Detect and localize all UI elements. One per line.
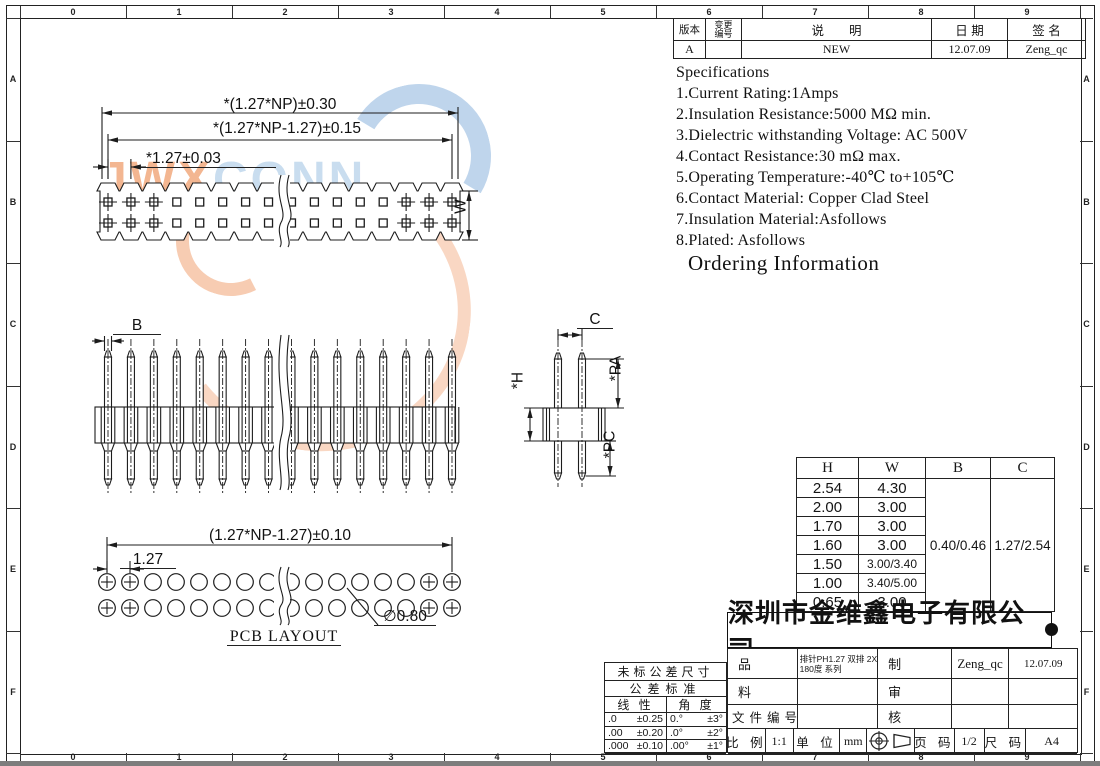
spec-item: 2.Insulation Resistance:5000 MΩ min.: [676, 104, 1086, 125]
ruler-mark: [1080, 386, 1093, 387]
dim-pcb-hole-diameter: ∅0.80: [374, 608, 436, 626]
dim-topview-overall: *(1.27*NP)±0.30: [150, 96, 410, 113]
spec-item: 5.Operating Temperature:-40℃ to+105℃: [676, 167, 1086, 188]
ruler-mark: [6, 141, 20, 142]
company-name-bar: 深圳市金维鑫电子有限公司: [727, 612, 1052, 648]
size-table: H W B C 2.544.300.40/0.461.27/2.542.003.…: [796, 457, 1055, 612]
size-table-cell: 3.00: [859, 498, 926, 517]
ruler-mark: [6, 263, 20, 264]
size-col-c: C: [991, 458, 1055, 479]
tolerance-row: .0±0.250.°±3°: [605, 713, 726, 727]
scan-edge: [0, 761, 1100, 766]
drawn-date-value: 12.07.09: [1009, 649, 1077, 679]
approve-date-value: [1009, 705, 1077, 729]
dim-topview-inner: *(1.27*NP-1.27)±0.15: [157, 120, 417, 137]
zone-letter-left: C: [6, 319, 20, 329]
file-number-value: [798, 705, 879, 729]
spec-item: 3.Dielectric withstanding Voltage: AC 50…: [676, 125, 1086, 146]
tolerance-row: .000±0.10.00°±1°: [605, 740, 726, 754]
title-block: 品 名 排针PH1.27 双排 2XNP 180度 系列 制 图 Zeng_qc…: [727, 648, 1078, 753]
page-value: 1/2: [955, 729, 985, 754]
size-col-h: H: [797, 458, 859, 479]
revision-col-date: 日 期: [932, 19, 1008, 41]
review-label: 审 核: [878, 679, 952, 705]
zone-number-top: 3: [338, 7, 444, 17]
ordering-information-title: Ordering Information: [688, 251, 879, 276]
revision-desc: NEW: [742, 41, 932, 59]
zone-letter-right: F: [1080, 687, 1093, 697]
size-col-b: B: [926, 458, 991, 479]
page-label: 页 码: [915, 729, 955, 754]
ruler-mark: [1080, 508, 1093, 509]
revision-col-change: 变更 编号: [706, 19, 742, 41]
approve-label: 核 准: [878, 705, 952, 729]
dim-endview-spacing: C: [577, 311, 613, 329]
revision-col-version: 版本: [674, 19, 706, 41]
zone-letter-right: E: [1080, 564, 1093, 574]
drawing-sheet: JWXCONN 00112233445566778899AABBCCDDEEFF…: [0, 0, 1100, 766]
file-number-label: 文件编号: [728, 705, 798, 729]
dim-sideview-pin-width: B: [113, 317, 161, 335]
tolerance-title-2: 公差标准: [605, 681, 726, 697]
size-table-merged-cell: 0.40/0.46: [926, 479, 991, 612]
tolerance-rows: .0±0.250.°±3°.00±0.20.0°±2°.000±0.10.00°…: [605, 713, 726, 754]
side-and-end-view-drawing: [88, 315, 628, 515]
part-number-label: 料 号: [728, 679, 798, 705]
dim-pcb-pitch: 1.27: [120, 551, 176, 569]
tolerance-title-1: 未标公差尺寸: [605, 663, 726, 681]
spec-item: 1.Current Rating:1Amps: [676, 83, 1086, 104]
revision-table: 版本 变更 编号 说 明 日 期 签 名 A NEW 12.07.09 Zeng…: [673, 18, 1086, 59]
approve-value: [952, 705, 1010, 729]
ruler-mark: [6, 508, 20, 509]
size-table-cell: 4.30: [859, 479, 926, 498]
zone-letter-left: D: [6, 442, 20, 452]
zone-number-top: 2: [232, 7, 338, 17]
dim-topview-width: W: [453, 196, 470, 218]
tolerance-row: .00±0.20.0°±2°: [605, 727, 726, 741]
dim-endview-pc: *PC: [602, 423, 619, 467]
size-col-w: W: [859, 458, 926, 479]
zone-letter-left: F: [6, 687, 20, 697]
ruler-mark: [6, 631, 20, 632]
size-table-cell: 1.60: [797, 536, 859, 555]
pcb-layout-caption: PCB LAYOUT: [227, 628, 341, 646]
ruler-mark: [1080, 6, 1081, 18]
size-table-row: 2.544.300.40/0.461.27/2.54: [797, 479, 1055, 498]
scale-value: 1:1: [766, 729, 794, 754]
spec-item: 6.Contact Material: Copper Clad Steel: [676, 188, 1086, 209]
sheet-size-label: 尺 码: [985, 729, 1027, 754]
size-table-cell: 2.54: [797, 479, 859, 498]
sheet-size-value: A4: [1026, 729, 1077, 754]
third-angle-projection-icon: [869, 731, 913, 751]
size-table-merged-cell: 1.27/2.54: [991, 479, 1055, 612]
size-table-cell: 1.50: [797, 555, 859, 574]
product-name-label: 品 名: [728, 649, 798, 679]
spec-item: 7.Insulation Material:Asfollows: [676, 209, 1086, 230]
tolerance-angle-header: 角 度: [667, 697, 726, 713]
revision-row: A NEW 12.07.09 Zeng_qc: [674, 41, 1086, 59]
size-table-cell: 3.00/3.40: [859, 555, 926, 574]
ruler-mark: [1080, 631, 1093, 632]
specifications-title: Specifications: [676, 62, 1086, 83]
zone-number-top: 0: [20, 7, 126, 17]
ruler-mark: [1080, 753, 1093, 754]
product-name-value: 排针PH1.27 双排 2XNP 180度 系列: [798, 649, 879, 679]
ruler-mark: [1080, 263, 1093, 264]
revision-col-desc: 说 明: [742, 19, 932, 41]
zone-number-top: 1: [126, 7, 232, 17]
dim-endview-h: *H: [510, 361, 527, 401]
revision-change: [706, 41, 742, 59]
zone-letter-left: A: [6, 74, 20, 84]
spec-item: 4.Contact Resistance:30 mΩ max.: [676, 146, 1086, 167]
size-table-cell: 3.40/5.00: [859, 574, 926, 593]
drawn-by-label: 制 图: [878, 649, 952, 679]
dim-pcb-overall: (1.27*NP-1.27)±0.10: [150, 527, 410, 544]
revision-col-sign: 签 名: [1008, 19, 1086, 41]
spec-item: 8.Plated: Asfollows: [676, 230, 1086, 251]
tolerance-linear-header: 线 性: [605, 697, 667, 713]
drawn-by-value: Zeng_qc: [952, 649, 1010, 679]
zone-number-top: 9: [974, 7, 1080, 17]
tolerance-table: 未标公差尺寸 公差标准 线 性 角 度 .0±0.250.°±3°.00±0.2…: [604, 662, 727, 753]
size-table-cell: 2.00: [797, 498, 859, 517]
dim-topview-pitch: *1.27±0.03: [140, 150, 276, 168]
company-dot: [1045, 623, 1058, 636]
top-view-drawing: [88, 95, 488, 255]
zone-number-top: 5: [550, 7, 656, 17]
zone-number-top: 4: [444, 7, 550, 17]
zone-letter-right: D: [1080, 442, 1093, 452]
scale-label: 比 例: [728, 729, 766, 754]
ruler-mark: [6, 386, 20, 387]
revision-sign: Zeng_qc: [1008, 41, 1086, 59]
zone-number-top: 8: [868, 7, 974, 17]
size-table-cell: 3.00: [859, 536, 926, 555]
zone-letter-left: B: [6, 197, 20, 207]
zone-letter-right: C: [1080, 319, 1093, 329]
unit-label: 单 位: [794, 729, 841, 754]
review-date-value: [1009, 679, 1077, 705]
zone-number-top: 6: [656, 7, 762, 17]
ruler-mark: [6, 753, 20, 754]
unit-value: mm: [840, 729, 867, 754]
size-table-cell: 1.70: [797, 517, 859, 536]
revision-version: A: [674, 41, 706, 59]
size-table-cell: 1.00: [797, 574, 859, 593]
part-number-value: [798, 679, 879, 705]
revision-date: 12.07.09: [932, 41, 1008, 59]
ruler-mark: [6, 18, 20, 19]
size-table-cell: 3.00: [859, 517, 926, 536]
review-value: [952, 679, 1010, 705]
dim-endview-pa: *PA: [608, 347, 625, 391]
specifications-block: Specifications 1.Current Rating:1Amps2.I…: [676, 62, 1086, 251]
projection-symbol: [867, 729, 915, 754]
zone-number-top: 7: [762, 7, 868, 17]
specifications-list: 1.Current Rating:1Amps2.Insulation Resis…: [676, 83, 1086, 251]
zone-letter-left: E: [6, 564, 20, 574]
